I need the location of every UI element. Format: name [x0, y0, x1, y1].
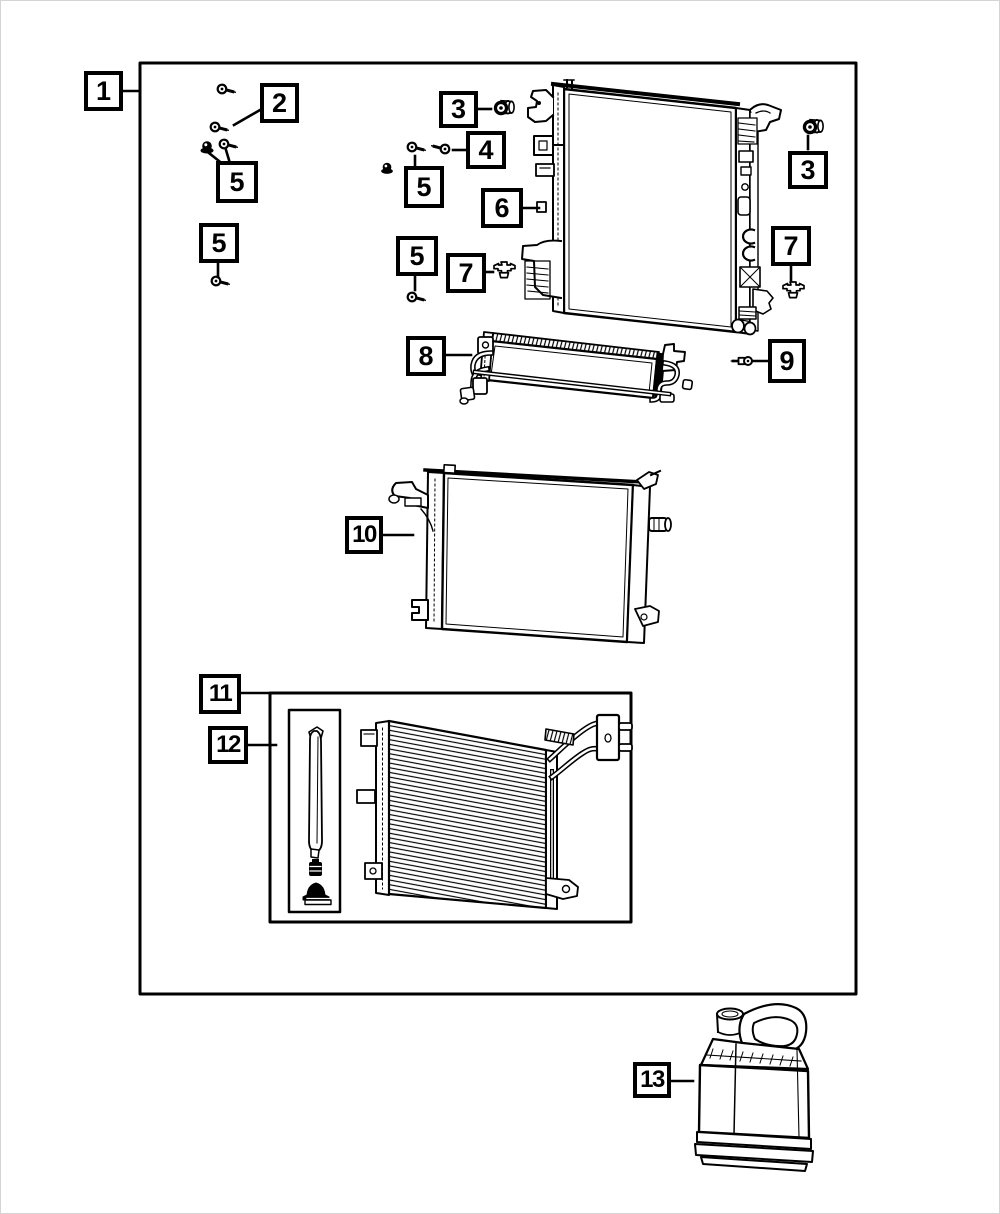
callout-7-mid[interactable]: 7 [446, 253, 486, 293]
screw-icon [407, 292, 426, 303]
transmission-oil-cooler-drawing [460, 332, 693, 404]
callout-12[interactable]: 12 [208, 726, 248, 764]
callout-5-mid-upper[interactable]: 5 [404, 166, 444, 208]
receiver-drier-kit-drawing [303, 727, 331, 905]
callout-5-mid-lower[interactable]: 5 [396, 236, 438, 276]
parts-diagram-page: 1 2 3 4 5 5 5 5 6 3 7 7 8 9 10 11 12 13 [0, 0, 1000, 1214]
screw-icon [211, 276, 230, 287]
secondary-radiator-drawing [389, 465, 671, 643]
sensor-screw-icon [730, 357, 752, 365]
grommet-icon [494, 101, 514, 116]
main-radiator-drawing [522, 80, 781, 335]
nut-icon [381, 163, 393, 174]
callout-11[interactable]: 11 [199, 674, 241, 714]
coolant-jug-drawing [695, 1004, 813, 1171]
screw-icon [431, 143, 450, 154]
callout-7-right[interactable]: 7 [771, 226, 811, 266]
callout-2[interactable]: 2 [260, 83, 299, 123]
grommet-icon [803, 120, 823, 135]
screw-icon [217, 84, 236, 95]
callout-6[interactable]: 6 [481, 188, 523, 228]
callout-1[interactable]: 1 [84, 71, 123, 111]
callout-4[interactable]: 4 [466, 131, 506, 169]
screw-icon [407, 142, 426, 153]
callout-13[interactable]: 13 [633, 1062, 671, 1098]
callout-9[interactable]: 9 [768, 339, 806, 383]
ac-condenser-drawing [357, 715, 632, 909]
screw-icon [210, 122, 229, 133]
callout-8[interactable]: 8 [406, 336, 446, 376]
retainer-nut-icon [494, 262, 515, 278]
retainer-nut-icon [783, 282, 804, 298]
callout-5-top[interactable]: 5 [216, 161, 258, 203]
callout-5-left[interactable]: 5 [199, 223, 239, 263]
diagram-line-art [1, 1, 1000, 1214]
screw-icon [219, 139, 238, 150]
nut-icon [201, 141, 214, 153]
callout-10[interactable]: 10 [345, 516, 383, 554]
callout-3-left[interactable]: 3 [439, 91, 478, 128]
callout-3-right[interactable]: 3 [788, 151, 828, 189]
